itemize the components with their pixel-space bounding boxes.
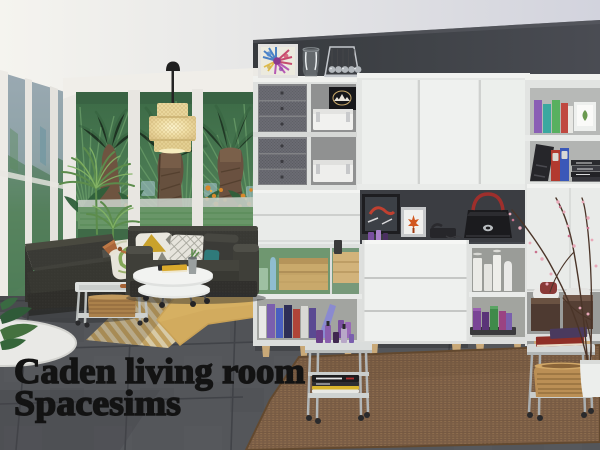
svg-text:Spacesims: Spacesims xyxy=(14,383,181,423)
